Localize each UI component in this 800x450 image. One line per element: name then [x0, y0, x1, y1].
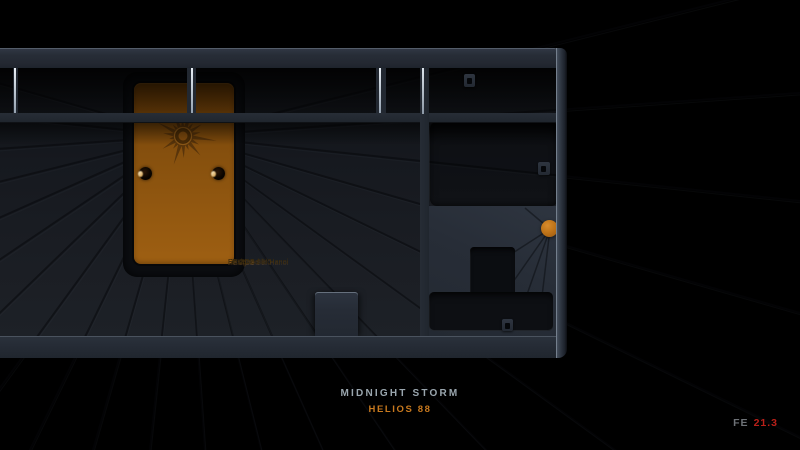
t-recess-bar: [429, 292, 553, 331]
version-label: 21.3: [754, 417, 778, 429]
divider-highlight: [14, 68, 16, 114]
screw-glint: [211, 171, 216, 177]
case-top-rail: [0, 48, 560, 68]
case-right-edge: [556, 48, 567, 358]
wall-highlight: [422, 68, 424, 114]
screw-hole-icon: [139, 167, 152, 180]
right-mount-section: [429, 206, 558, 336]
case-step-tab: [315, 292, 358, 338]
snap-clip: [502, 319, 513, 331]
section-divider-wall: [420, 68, 429, 336]
slot-rail: [0, 113, 558, 123]
snap-clip: [464, 74, 475, 87]
model-caption: HELIOS 88: [0, 404, 800, 415]
clip-hole: [541, 166, 546, 172]
snap-clip: [538, 162, 550, 175]
badge-line-3: Designed in Hanoi: [228, 259, 289, 268]
screw-hole-icon: [212, 167, 225, 180]
clip-hole: [467, 78, 472, 84]
brand-watermark: FE21.3: [733, 417, 778, 429]
brand-label: FE: [733, 417, 748, 429]
divider-highlight: [191, 68, 193, 114]
divider-highlight: [379, 68, 381, 114]
clip-hole: [505, 323, 510, 329]
screw-glint: [138, 171, 143, 177]
colorway-caption: MIDNIGHT STORM: [0, 388, 800, 399]
slot-divider: [187, 68, 196, 114]
slot-divider: [376, 68, 386, 114]
slot-divider: [13, 68, 18, 114]
t-recess-stem: [470, 247, 515, 294]
render-stage: FE 21.3 HELIOS 88/0 Designed in Hanoi MI…: [0, 0, 800, 450]
case-bottom-rail: [0, 336, 564, 358]
